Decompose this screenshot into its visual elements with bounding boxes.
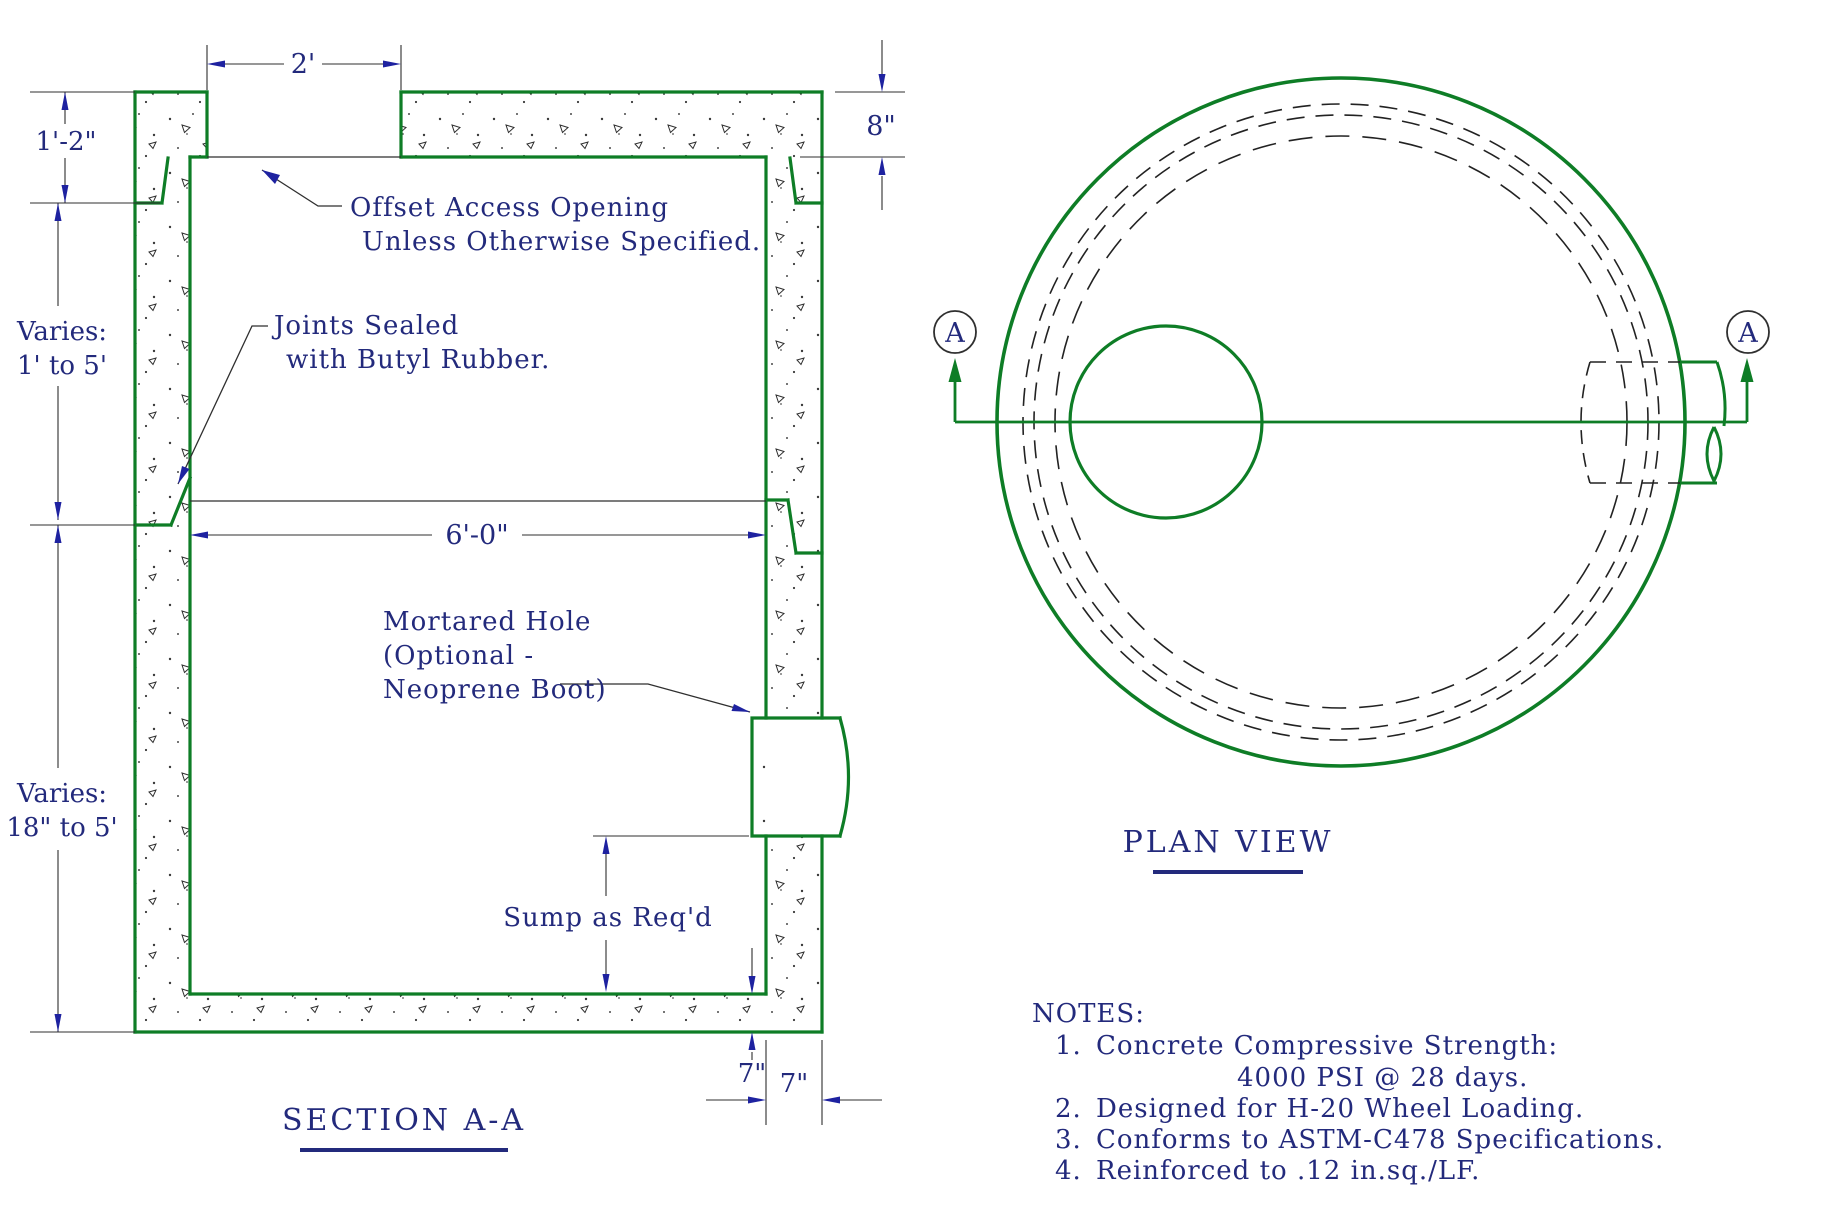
drawing-sheet: 2' 1'-2" 8" Varies: 1' to 5' Varies: 18"… [0,0,1844,1213]
note-1-text2: 4000 PSI @ 28 days. [1237,1063,1528,1093]
dim-riser-varies-1: Varies: [16,317,107,347]
dim-opening-width: 2' [291,49,316,80]
dim-inner-width: 6'-0" [445,520,508,551]
label-offset-opening-2: Unless Otherwise Specified. [362,227,761,257]
plan-section-markers: A A [934,311,1769,353]
label-joints-2: with Butyl Rubber. [286,345,550,375]
plan-view: A A PLAN VIEW [934,78,1769,872]
dim-riser-varies-2: 1' to 5' [17,351,107,381]
section-title: SECTION A-A [282,1103,526,1138]
note-4-text: Reinforced to .12 in.sq./LF. [1096,1156,1480,1186]
dim-collar-height: 1'-2" [36,127,97,157]
note-1-text: Concrete Compressive Strength: [1096,1031,1558,1061]
note-1-num: 1. [1055,1031,1082,1061]
dim-slab-thickness: 7" [738,1059,767,1089]
section-marker-left: A [944,318,965,349]
note-3-num: 3. [1055,1125,1082,1155]
plan-title: PLAN VIEW [1123,825,1334,860]
label-joints-1: Joints Sealed [271,311,459,341]
cad-drawing: 2' 1'-2" 8" Varies: 1' to 5' Varies: 18"… [0,0,1844,1213]
note-3-text: Conforms to ASTM-C478 Specifications. [1096,1125,1664,1155]
dim-wall-thickness: 7" [780,1069,809,1099]
label-sump: Sump as Req'd [503,903,713,933]
label-mortared-3: Neoprene Boot) [383,675,607,705]
note-4-num: 4. [1055,1156,1082,1186]
notes-block: NOTES: 1. Concrete Compressive Strength:… [1032,999,1664,1186]
dim-lid-thickness: 8" [866,111,896,142]
note-2-text: Designed for H-20 Wheel Loading. [1096,1094,1584,1124]
label-offset-opening-1: Offset Access Opening [350,193,669,223]
note-2-num: 2. [1055,1094,1082,1124]
dim-base-varies-2: 18" to 5' [6,813,117,843]
label-mortared-1: Mortared Hole [383,607,591,637]
dim-base-varies-1: Varies: [16,779,107,809]
section-marker-right: A [1737,318,1758,349]
label-mortared-2: (Optional - [383,641,534,671]
section-leaders: Offset Access Opening Unless Otherwise S… [178,170,761,933]
notes-heading: NOTES: [1032,999,1145,1029]
